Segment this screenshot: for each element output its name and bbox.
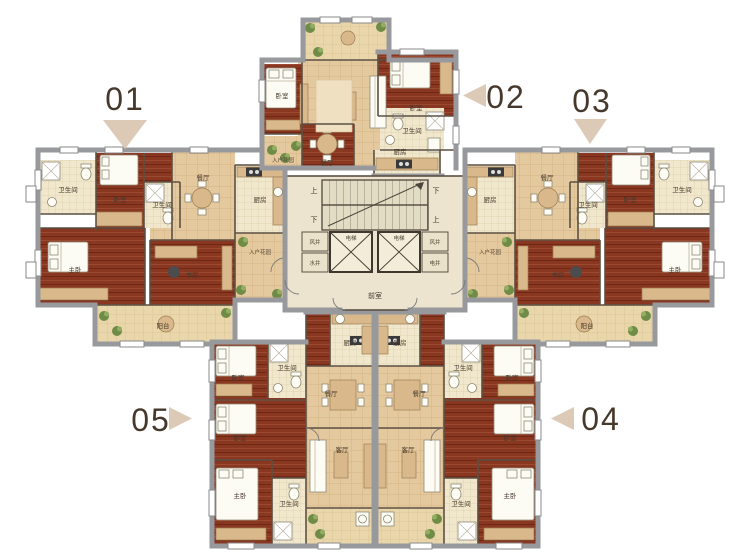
unit-05-label: 05 [131, 402, 171, 438]
unit-04-floorplan [376, 312, 541, 549]
u02-kitchen-label: 厨房 [394, 147, 407, 156]
u05-dining-label: 餐厅 [325, 389, 339, 398]
u03-bedroom-label: 卧室 [624, 195, 638, 204]
u05-bath1-label: 卫生间 [277, 363, 297, 372]
u04-bath2-label: 卫生间 [451, 499, 471, 508]
core-up-right-label: 上 [433, 215, 440, 224]
u03-study-label: 书房 [552, 270, 565, 279]
core-down-left-label: 下 [311, 216, 318, 224]
unit-02-label: 02 [486, 79, 526, 115]
u01-study-label: 书房 [186, 270, 199, 279]
u04-bedroom2-label: 卧室 [504, 433, 518, 442]
core-air-shaft-left-label: 风井 [309, 238, 321, 246]
core-down-right-label: 下 [433, 187, 440, 195]
u01-dining-label: 餐厅 [197, 173, 211, 182]
unit-03-label: 03 [572, 83, 612, 119]
u03-entry-garden-label: 入户花园 [479, 248, 502, 256]
u01-bath2-label: 卫生间 [152, 200, 172, 209]
u05-bedroom2-label: 卧室 [234, 433, 248, 442]
unit-05-floorplan [209, 312, 374, 549]
u04-living-label: 客厅 [402, 445, 416, 454]
u01-bath-label: 卫生间 [58, 185, 78, 194]
core-elevator-right-label: 电梯 [393, 234, 405, 242]
u03-balcony-label: 阳台 [581, 321, 594, 330]
unit-04-label: 04 [581, 401, 621, 437]
u03-bath-label: 卫生间 [672, 185, 692, 194]
u04-bedroom1-label: 卧室 [506, 373, 520, 382]
u01-bedroom-label: 卧室 [114, 195, 128, 204]
core-lobby-label: 前室 [368, 291, 382, 300]
core-electric-shaft-label: 电井 [429, 259, 441, 267]
u03-kitchen-label: 厨房 [484, 195, 497, 204]
u05-master-label: 主卧 [234, 491, 248, 500]
u04-bath1-label: 卫生间 [453, 363, 473, 372]
u01-balcony-label: 阳台 [157, 321, 170, 330]
u02-bath-label: 卫生间 [402, 126, 422, 135]
u02-bedroom-left-label: 卧室 [276, 91, 290, 100]
floor-plan-svg: 01 02 03 04 05 卫生间 卧室 卫生间 餐厅 厨房 入户花园 主卧 … [0, 0, 750, 560]
u04-dining-label: 餐厅 [413, 389, 427, 398]
core-air-shaft-right-label: 风井 [429, 238, 441, 246]
u03-bath2-label: 卫生间 [578, 200, 598, 209]
u05-living-label: 客厅 [336, 445, 350, 454]
u03-master-label: 主卧 [669, 265, 683, 274]
u02-dining-label: 餐厅 [321, 158, 335, 167]
core-water-shaft-label: 水井 [309, 259, 321, 267]
u01-kitchen-label: 厨房 [254, 195, 267, 204]
u04-kitchen-label: 厨房 [394, 338, 407, 347]
u02-bedroom-right-label: 卧室 [410, 103, 424, 112]
core-elevator-left-label: 电梯 [345, 234, 357, 242]
u05-kitchen-label: 厨房 [344, 338, 357, 347]
u05-bath2-label: 卫生间 [279, 499, 299, 508]
u01-master-label: 主卧 [69, 265, 83, 274]
floor-plan-canvas: 01 02 03 04 05 卫生间 卧室 卫生间 餐厅 厨房 入户花园 主卧 … [0, 0, 750, 560]
u01-entry-garden-label: 入户花园 [249, 248, 272, 256]
u04-master-label: 主卧 [504, 491, 518, 500]
unit-01-label: 01 [105, 81, 145, 117]
u03-dining-label: 餐厅 [541, 173, 555, 182]
u02-entry-garden-label: 入户花园 [272, 156, 295, 164]
core-up-left-label: 上 [311, 186, 318, 195]
u05-bedroom1-label: 卧室 [232, 373, 246, 382]
